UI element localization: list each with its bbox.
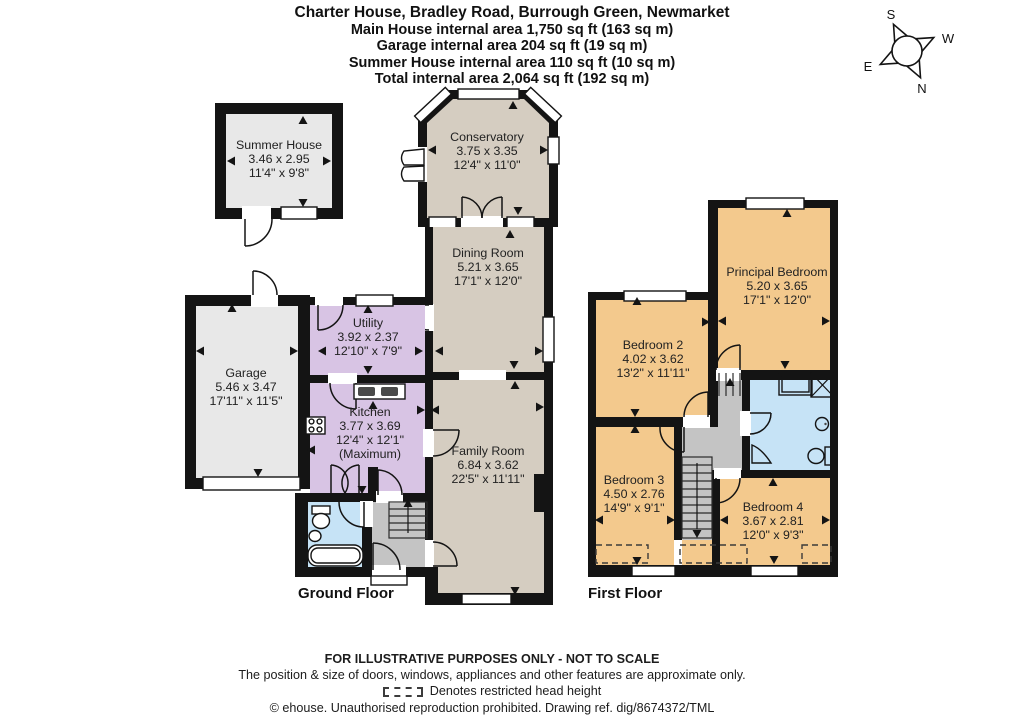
room-name: Conservatory	[450, 130, 524, 144]
room-dims-metric: 5.46 x 3.47	[215, 380, 276, 394]
room-name: Kitchen	[349, 405, 390, 419]
french-door-leaf	[402, 149, 425, 165]
floorplan-page: Charter House, Bradley Road, Burrough Gr…	[0, 0, 1024, 724]
restricted-head-height-note: Denotes restricted head height	[0, 683, 984, 699]
label-bedroom-4: Bedroom 4 3.67 x 2.81 12'0" x 9'3"	[742, 500, 803, 542]
compass-west: W	[942, 31, 955, 46]
compass-south: S	[887, 7, 896, 22]
basin	[309, 531, 321, 542]
window	[507, 217, 534, 228]
label-family-room: Family Room 6.84 x 3.62 22'5" x 11'11"	[451, 444, 524, 486]
room-first-bathroom	[750, 373, 830, 470]
room-dims-imperial: 14'9" x 9'1"	[603, 501, 664, 515]
room-name: Dining Room	[452, 246, 524, 260]
room-dims-metric: 4.50 x 2.76	[603, 487, 664, 501]
room-dims-metric: 3.67 x 2.81	[742, 514, 803, 528]
room-name: Family Room	[452, 444, 525, 458]
under-stairs	[682, 540, 712, 565]
room-dims-imperial: 12'4" x 11'0"	[453, 158, 520, 172]
window	[429, 217, 456, 228]
compass-east: E	[864, 59, 873, 74]
restricted-head-height-symbol	[383, 687, 423, 697]
room-dims-metric: 5.20 x 3.65	[746, 279, 807, 293]
window	[746, 198, 804, 209]
chimney-breast	[534, 474, 544, 512]
approximation-note: The position & size of doors, windows, a…	[0, 667, 984, 683]
disclaimer-line: FOR ILLUSTRATIVE PURPOSES ONLY - NOT TO …	[0, 651, 984, 667]
room-dims-metric: 3.75 x 3.35	[456, 144, 517, 158]
room-dims-metric: 5.21 x 3.65	[457, 260, 518, 274]
room-dims-imperial: 12'0" x 9'3"	[742, 528, 803, 542]
window	[624, 291, 686, 301]
room-dims-imperial: 17'1" x 12'0"	[454, 274, 522, 288]
room-dims-metric: 3.92 x 2.37	[337, 330, 398, 344]
kitchen-sink	[354, 384, 405, 399]
room-name: Bedroom 2	[623, 338, 684, 352]
footer-notes: FOR ILLUSTRATIVE PURPOSES ONLY - NOT TO …	[0, 651, 984, 716]
first-floor-label: First Floor	[588, 585, 662, 602]
floorplan-drawing: S W E N	[0, 0, 1024, 724]
stove	[306, 417, 325, 434]
room-dims-imperial: 11'4" x 9'8"	[249, 166, 309, 180]
room-dims-metric: 4.02 x 3.62	[622, 352, 683, 366]
french-door-leaf	[402, 166, 425, 181]
room-dims-imperial: 22'5" x 11'11"	[451, 472, 524, 486]
room-dims-imperial: 17'1" x 12'0"	[743, 293, 811, 307]
room-dims-metric: 6.84 x 3.62	[457, 458, 518, 472]
bathtub	[308, 545, 363, 566]
front-door	[371, 576, 407, 585]
garage-door	[203, 477, 300, 490]
room-dims-note: (Maximum)	[339, 447, 401, 461]
room-dims-imperial: 13'2" x 11'11"	[616, 366, 689, 380]
ground-floor-label: Ground Floor	[298, 585, 394, 602]
room-dims-metric: 3.77 x 3.69	[339, 419, 400, 433]
room-dims-imperial: 12'10" x 7'9"	[334, 344, 402, 358]
room-name: Garage	[225, 366, 266, 380]
room-name: Bedroom 3	[604, 473, 665, 487]
room-family-room	[423, 380, 544, 605]
room-name: Summer House	[236, 138, 322, 152]
room-name: Bedroom 4	[743, 500, 804, 514]
room-dims-imperial: 17'11" x 11'5"	[209, 394, 282, 408]
window	[751, 566, 798, 576]
room-dims-imperial: 12'4" x 12'1"	[336, 433, 404, 447]
label-bedroom-2: Bedroom 2 4.02 x 3.62 13'2" x 11'11"	[616, 338, 689, 380]
window	[632, 566, 675, 576]
copyright-line: © ehouse. Unauthorised reproduction proh…	[0, 700, 984, 716]
label-bedroom-3: Bedroom 3 4.50 x 2.76 14'9" x 9'1"	[603, 473, 664, 515]
room-dims-metric: 3.46 x 2.95	[248, 152, 309, 166]
compass-north: N	[917, 81, 926, 96]
room-name: Principal Bedroom	[726, 265, 827, 279]
label-dining-room: Dining Room 5.21 x 3.65 17'1" x 12'0"	[452, 246, 524, 288]
label-conservatory: Conservatory 3.75 x 3.35 12'4" x 11'0"	[450, 130, 524, 172]
compass-rose-icon: S W E N	[864, 7, 955, 96]
room-name: Utility	[353, 316, 384, 330]
toilet	[312, 506, 330, 529]
